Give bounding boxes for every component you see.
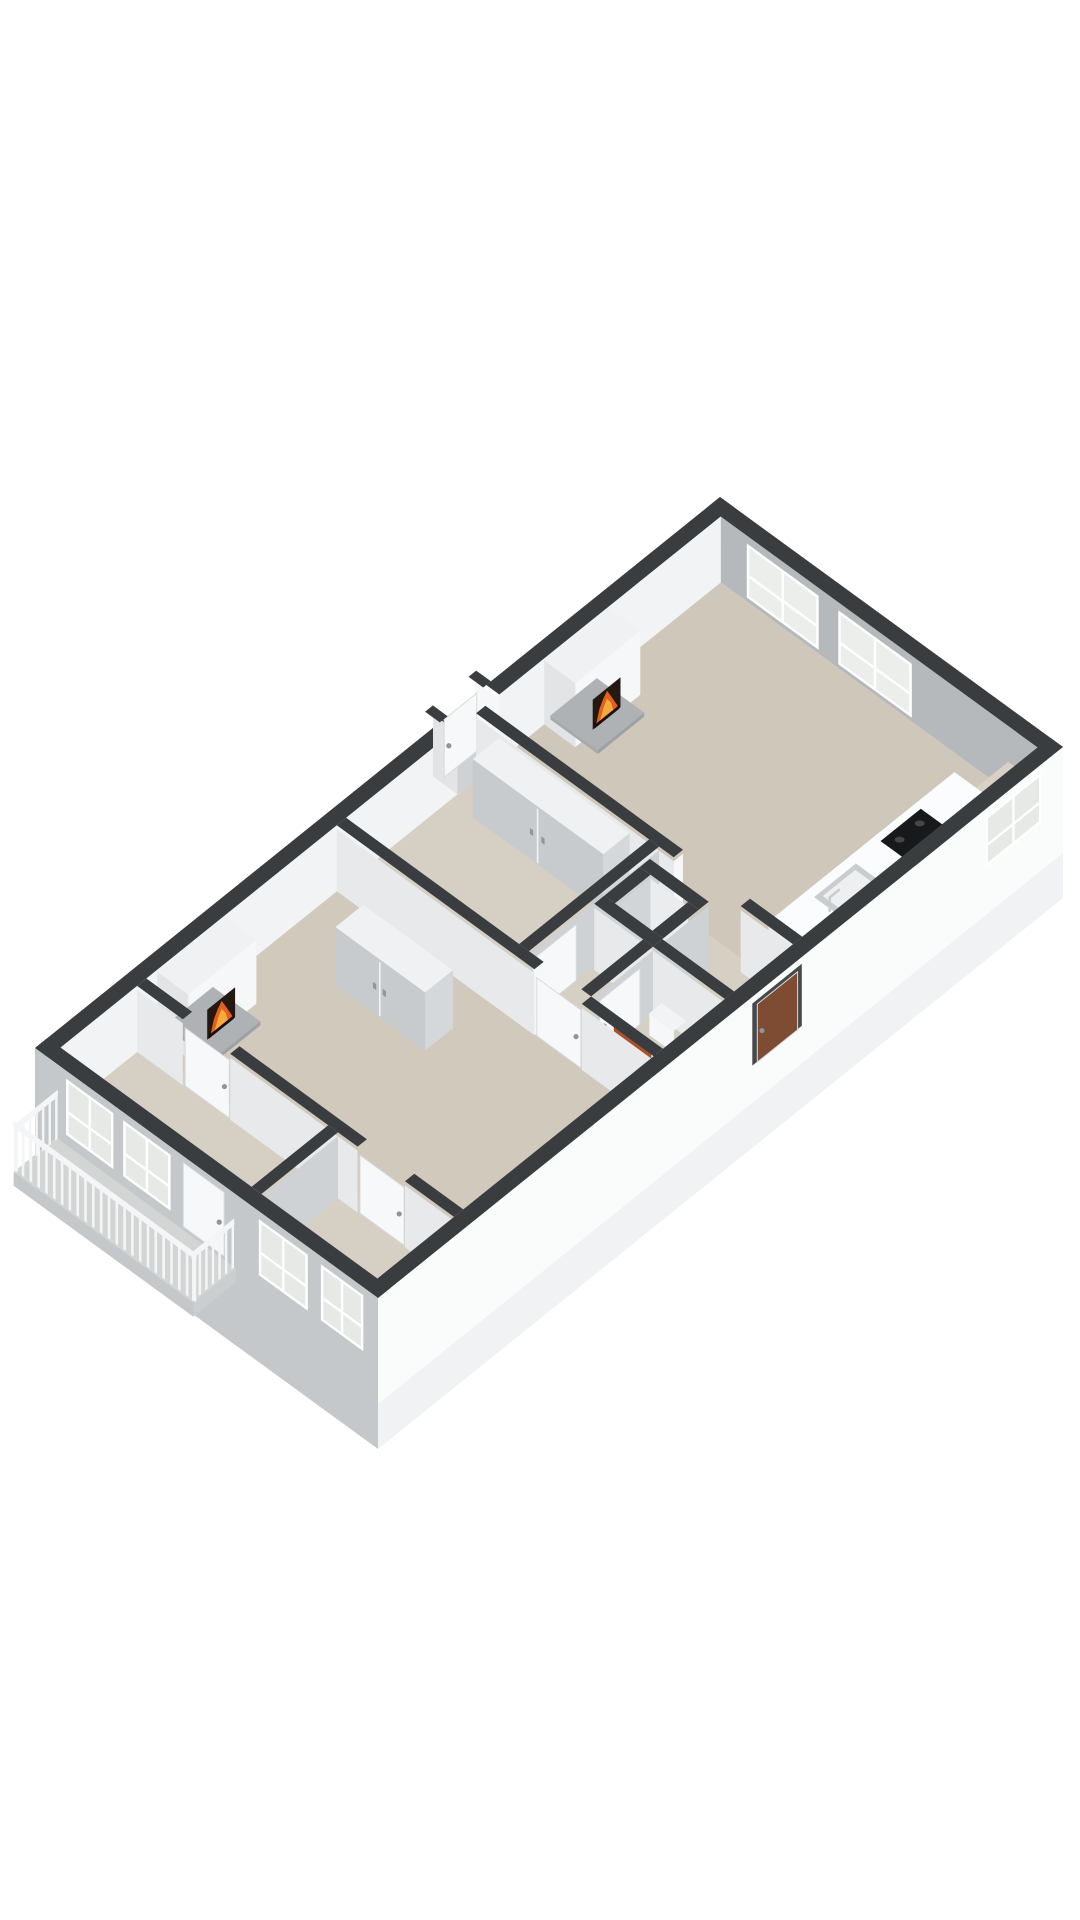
railing-picket: [116, 1202, 119, 1246]
railing-picket: [155, 1230, 158, 1274]
railing-picket: [212, 1241, 214, 1285]
railing-picket: [108, 1196, 111, 1240]
railing-picket: [218, 1236, 221, 1280]
door-handle-icon: [446, 743, 451, 748]
railing-picket: [69, 1167, 72, 1211]
railing-picket: [100, 1190, 103, 1234]
railing-picket: [170, 1241, 173, 1285]
fixture: [895, 837, 905, 843]
railing-picket: [162, 1236, 165, 1280]
door-handle-icon: [222, 1084, 227, 1089]
railing-picket: [205, 1247, 208, 1291]
railing-picket: [37, 1145, 40, 1189]
railing-picket: [199, 1252, 202, 1296]
railing-picket: [53, 1156, 56, 1200]
railing-picket: [14, 1128, 17, 1172]
floorplan-page: [0, 0, 1080, 1920]
window-mullion: [89, 1098, 92, 1150]
railing-picket: [92, 1185, 95, 1229]
window-mullion: [282, 1239, 284, 1291]
window-mullion: [782, 572, 785, 622]
wall-face: [537, 808, 539, 863]
railing-picket: [30, 1139, 33, 1183]
window-mullion: [146, 1140, 148, 1192]
railing-picket: [147, 1224, 150, 1268]
wall-face: [379, 962, 381, 1017]
railing-picket: [178, 1247, 181, 1291]
railing-picket: [194, 1259, 197, 1303]
railing-picket: [225, 1231, 228, 1275]
railing-picket: [123, 1207, 126, 1251]
railing-picket: [49, 1102, 52, 1146]
railing-picket: [76, 1173, 79, 1217]
door-handle-icon: [573, 1034, 578, 1039]
railing-picket: [131, 1213, 134, 1257]
window-mullion: [341, 1282, 343, 1334]
window-mullion: [874, 639, 877, 689]
railing-picket: [55, 1097, 58, 1141]
door-handle-icon: [759, 1028, 764, 1033]
door-handle-icon: [397, 1211, 402, 1216]
window-mullion: [1012, 797, 1014, 843]
railing-picket: [45, 1150, 48, 1194]
floorplan-3d-render: [0, 0, 1080, 1920]
railing-picket: [232, 1226, 235, 1270]
fixture: [915, 820, 925, 826]
door-handle-icon: [217, 1220, 222, 1225]
railing-picket: [84, 1179, 87, 1223]
railing-picket: [22, 1133, 25, 1177]
railing-picket: [186, 1253, 189, 1297]
railing-picket: [61, 1162, 64, 1206]
railing-picket: [139, 1219, 142, 1263]
